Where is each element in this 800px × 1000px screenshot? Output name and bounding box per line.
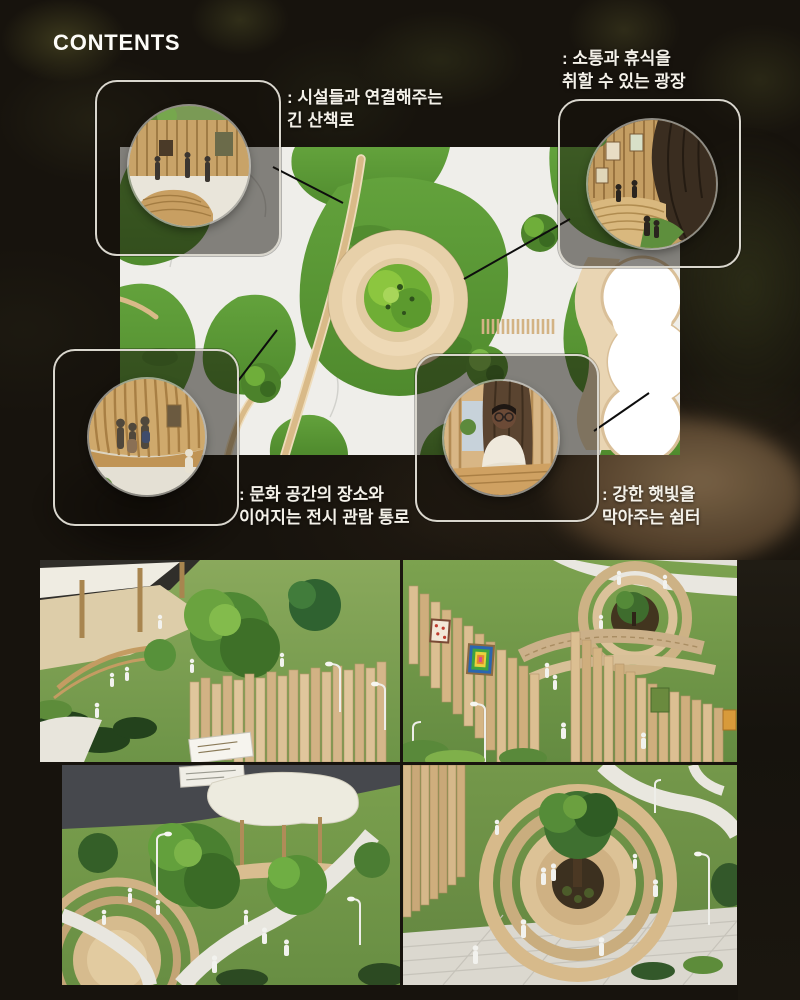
plaza-photo [588, 120, 716, 248]
presentation-board: CONTENTS [0, 0, 800, 1000]
model-photo-canopy-trees [40, 560, 400, 762]
note-walkway-line2: 긴 산책로 [287, 109, 443, 132]
gallery-photo [89, 379, 205, 495]
callout-box-gallery [53, 349, 239, 526]
model-photo-3-art [62, 765, 400, 985]
callout-box-plaza [558, 99, 741, 268]
art-frame-dots [430, 619, 449, 642]
walkway-photo [129, 106, 249, 226]
callout-box-shelter [415, 354, 599, 522]
model-photo-pavilion [62, 765, 400, 985]
shelter-photo [444, 381, 558, 495]
walkway-photo-art [129, 106, 249, 226]
note-plaza-line1: : 소통과 휴식을 [562, 47, 686, 70]
note-shelter-line2: 막아주는 쉼터 [602, 506, 701, 529]
callout-box-walkway [95, 80, 281, 256]
note-gallery-line2: 이어지는 전시 관람 통로 [239, 506, 410, 529]
art-frame-rainbow [466, 643, 495, 676]
gallery-photo-art [89, 379, 205, 495]
pergola-hatch [483, 319, 553, 334]
note-plaza-line2: 취할 수 있는 광장 [562, 70, 686, 93]
shelter-photo-art [444, 381, 558, 495]
model-photo-4-art [403, 765, 737, 985]
central-tree-rings [328, 230, 468, 370]
plaza-photo-art [588, 120, 716, 248]
note-gallery: : 문화 공간의 장소와 이어지는 전시 관람 통로 [239, 483, 410, 529]
note-shelter-line1: : 강한 햇빛을 [602, 483, 701, 506]
note-walkway: : 시설들과 연결해주는 긴 산책로 [287, 86, 443, 132]
note-shelter: : 강한 햇빛을 막아주는 쉼터 [602, 483, 701, 529]
note-walkway-line1: : 시설들과 연결해주는 [287, 86, 443, 109]
model-photo-2-art [403, 560, 737, 762]
model-photo-circular-platform [403, 765, 737, 985]
model-photo-exhibition-walls [403, 560, 737, 762]
note-gallery-line1: : 문화 공간의 장소와 [239, 483, 410, 506]
note-plaza: : 소통과 휴식을 취할 수 있는 광장 [562, 47, 686, 93]
model-photo-1-art [40, 560, 400, 762]
page-title: CONTENTS [53, 30, 180, 56]
